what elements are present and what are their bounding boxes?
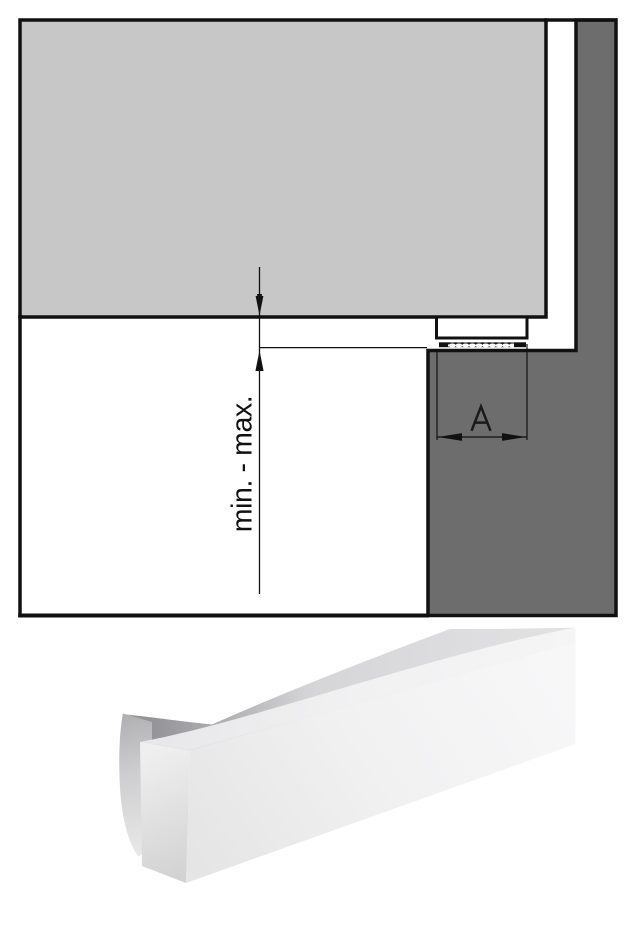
- svg-text:min. - max.: min. - max.: [227, 396, 259, 533]
